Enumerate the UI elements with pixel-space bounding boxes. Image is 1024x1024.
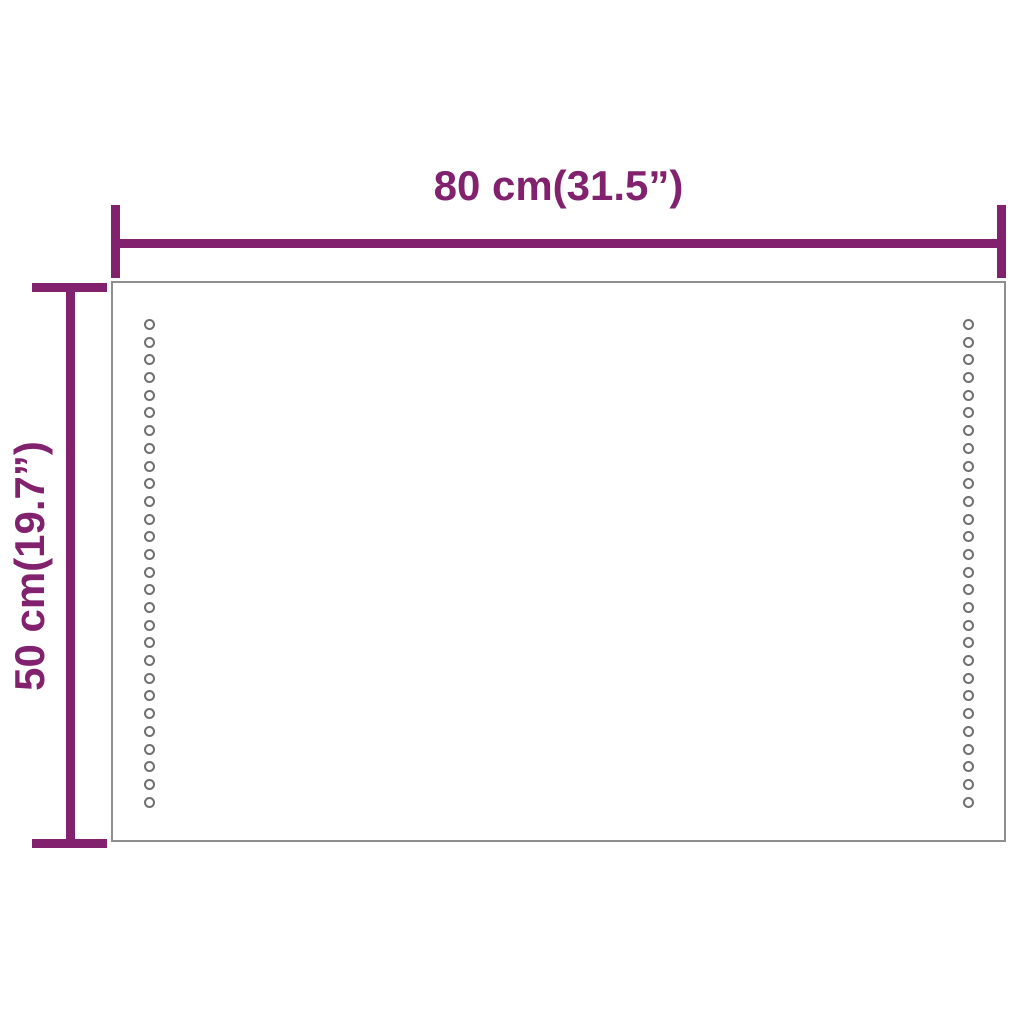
led-dot [963, 690, 974, 701]
height-dimension-line [66, 287, 75, 844]
led-dot [963, 478, 974, 489]
led-dot [144, 407, 155, 418]
led-dot [963, 602, 974, 613]
led-dot [963, 372, 974, 383]
led-dot [144, 443, 155, 454]
led-dot [144, 372, 155, 383]
led-dot [963, 708, 974, 719]
height-dimension-label: 50 cm(19.7”) [6, 441, 54, 691]
led-dot [963, 744, 974, 755]
led-dot-column-right [963, 319, 974, 808]
width-dimension-line [111, 239, 1006, 248]
height-dimension-tick-bottom [32, 839, 107, 848]
led-dot [144, 584, 155, 595]
led-dot [963, 443, 974, 454]
led-dot [144, 726, 155, 737]
product-dimension-diagram: 80 cm(31.5”) 50 cm(19.7”) [0, 0, 1024, 1024]
led-dot [963, 425, 974, 436]
led-dot [144, 620, 155, 631]
led-dot [144, 655, 155, 666]
led-dot [144, 496, 155, 507]
led-dot [144, 390, 155, 401]
led-dot [963, 779, 974, 790]
led-dot [963, 496, 974, 507]
led-dot [144, 549, 155, 560]
led-dot [963, 319, 974, 330]
led-dot [144, 478, 155, 489]
led-dot [144, 354, 155, 365]
led-dot [963, 461, 974, 472]
width-dimension-label: 80 cm(31.5”) [111, 164, 1006, 208]
led-dot [144, 425, 155, 436]
led-dot [144, 673, 155, 684]
led-dot [963, 407, 974, 418]
led-dot [144, 797, 155, 808]
led-dot [144, 708, 155, 719]
led-dot [144, 779, 155, 790]
led-dot [963, 584, 974, 595]
led-dot [144, 567, 155, 578]
led-dot [144, 744, 155, 755]
led-dot [963, 726, 974, 737]
led-dot [963, 390, 974, 401]
led-dot [963, 354, 974, 365]
led-dot [963, 637, 974, 648]
width-dimension-tick-right [997, 205, 1006, 278]
led-dot [963, 567, 974, 578]
led-dot [144, 461, 155, 472]
led-dot [963, 337, 974, 348]
led-dot [144, 319, 155, 330]
led-dot [963, 620, 974, 631]
led-dot [963, 797, 974, 808]
led-dot [963, 531, 974, 542]
led-dot [144, 690, 155, 701]
led-dot [963, 514, 974, 525]
led-dot [963, 673, 974, 684]
led-dot-column-left [144, 319, 155, 808]
led-dot [144, 637, 155, 648]
led-dot [144, 514, 155, 525]
led-dot [963, 655, 974, 666]
led-dot [144, 761, 155, 772]
led-dot [144, 602, 155, 613]
led-dot [963, 761, 974, 772]
led-dot [144, 337, 155, 348]
led-dot [963, 549, 974, 560]
mirror-rectangle [111, 281, 1006, 842]
led-dot [144, 531, 155, 542]
